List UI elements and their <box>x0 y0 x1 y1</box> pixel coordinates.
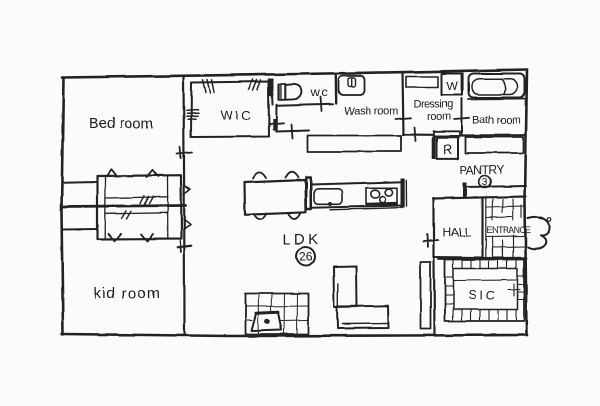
svg-text:R: R <box>443 142 453 157</box>
svg-text:Bath room: Bath room <box>473 115 521 127</box>
svg-text:room: room <box>427 111 451 123</box>
svg-text:kid room: kid room <box>94 285 161 302</box>
svg-text:SIC: SIC <box>469 289 499 303</box>
svg-text:HALL: HALL <box>443 226 472 240</box>
svg-text:wc: wc <box>310 85 330 100</box>
svg-text:PANTRY: PANTRY <box>460 163 505 177</box>
svg-text:Bed room: Bed room <box>89 115 154 132</box>
svg-text:LDK: LDK <box>283 231 323 248</box>
svg-text:ENTRANCE: ENTRANCE <box>487 225 532 235</box>
svg-text:Wash room: Wash room <box>344 106 398 118</box>
svg-text:WIC: WIC <box>221 108 253 123</box>
svg-text:26: 26 <box>299 250 313 264</box>
svg-text:Dressing: Dressing <box>414 99 454 111</box>
svg-text:W: W <box>447 79 459 93</box>
